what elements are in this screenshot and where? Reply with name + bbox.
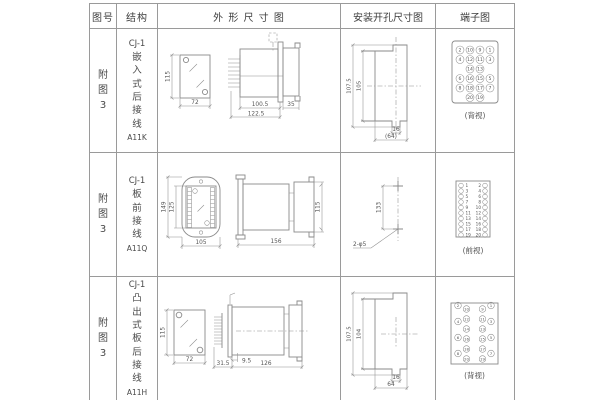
dim-cutout-inner: 104 bbox=[357, 328, 363, 339]
dim-front-width: 72 bbox=[191, 100, 199, 106]
row1-install-drawing: 107.5 105 16 (64) bbox=[341, 29, 435, 152]
page: 图号 结构 外 形 尺 寸 图 安装开孔尺寸图 端子图 附图3 CJ-1 嵌入式… bbox=[0, 0, 600, 400]
terminal-number: 7 bbox=[466, 200, 469, 205]
terminal-number: 19 bbox=[480, 356, 485, 361]
row1-figure-label: 附图3 bbox=[97, 68, 110, 113]
row1-structure-cell: CJ-1 嵌入式后接线 A11K bbox=[117, 29, 157, 152]
terminal-number: 5 bbox=[489, 76, 492, 82]
terminal-number: 7 bbox=[490, 351, 493, 356]
terminal-number: 4 bbox=[457, 319, 460, 324]
header-outline-label: 外 形 尺 寸 图 bbox=[213, 9, 285, 24]
terminal-number: 11 bbox=[466, 211, 472, 216]
terminal-number: 7 bbox=[489, 86, 492, 92]
terminal-number: 10 bbox=[464, 306, 469, 311]
row3-outline-cell: 115 72 9.5 31.5 126 bbox=[158, 277, 340, 400]
terminal-number: 8 bbox=[459, 86, 462, 92]
row2-figure-cell: 附图3 bbox=[90, 153, 116, 276]
terminal-number: 13 bbox=[480, 326, 485, 331]
dim-front-width: 72 bbox=[186, 357, 194, 363]
dim-flange-offset: 9.5 bbox=[242, 359, 252, 365]
header-structure: 结构 bbox=[117, 4, 157, 28]
terminal-number: 4 bbox=[478, 189, 481, 194]
terminal-number: 13 bbox=[477, 67, 483, 73]
terminal-number: 16 bbox=[467, 76, 473, 82]
header-figure-no: 图号 bbox=[90, 4, 116, 28]
row3-terminal-cell: 2 4 6 8 10 12 14 16 18 20 9 11 13 15 17 … bbox=[436, 277, 514, 400]
dim-body-depth: 126 bbox=[260, 361, 271, 367]
dim-slot-width: 16 bbox=[392, 375, 400, 381]
hole-size-label: 2-φ5 bbox=[353, 242, 367, 248]
terminal-number: 19 bbox=[466, 233, 472, 238]
dim-total-width: (64) bbox=[385, 134, 397, 140]
terminal-number: 6 bbox=[457, 335, 460, 340]
terminal-number: 2 bbox=[478, 183, 481, 188]
terminal-number: 14 bbox=[476, 216, 482, 221]
terminal-number: 5 bbox=[466, 194, 469, 199]
terminal-number: 3 bbox=[489, 57, 492, 63]
dim-depth-rear: 35 bbox=[287, 102, 295, 108]
row1-structure-type: 嵌入式后接线 bbox=[131, 51, 143, 131]
row1-outline-cell: 115 72 100.5 122.5 35 bbox=[158, 29, 340, 152]
header-terminal: 端子图 bbox=[436, 4, 514, 28]
dim-hole-spacing: 133 bbox=[377, 202, 383, 213]
row1-structure-model: CJ-1 bbox=[129, 39, 146, 49]
terminal-number: 6 bbox=[459, 76, 462, 82]
row3-install-cell: 107.5 104 16 64 bbox=[341, 277, 435, 400]
terminal-number: 9 bbox=[466, 205, 469, 210]
terminal-number: 3 bbox=[490, 319, 493, 324]
row3-structure-type: 凸出式板后接线 bbox=[131, 292, 143, 385]
terminal-number: 20 bbox=[464, 356, 469, 361]
row1-install-cell: 107.5 105 16 (64) bbox=[341, 29, 435, 152]
row3-install-drawing: 107.5 104 16 64 bbox=[341, 277, 435, 400]
row1-outline-drawing: 115 72 100.5 122.5 35 bbox=[158, 29, 340, 152]
terminal-number: 1 bbox=[490, 303, 493, 308]
terminal-number: 8 bbox=[478, 200, 481, 205]
header-terminal-label: 端子图 bbox=[460, 9, 490, 24]
terminal-view-caption: (背视) bbox=[465, 110, 486, 120]
terminal-number: 15 bbox=[480, 336, 485, 341]
terminal-number: 1 bbox=[466, 183, 469, 188]
terminal-number: 10 bbox=[476, 205, 482, 210]
terminal-number: 16 bbox=[476, 222, 482, 227]
row2-terminal-cell: 1 3 5 7 9 11 13 15 17 19 2 4 6 8 10 12 1… bbox=[436, 153, 514, 276]
dim-depth-total: 122.5 bbox=[248, 112, 265, 118]
terminal-number: 12 bbox=[476, 211, 482, 216]
terminal-number: 5 bbox=[490, 335, 493, 340]
dim-plate-height: 149 bbox=[162, 201, 168, 212]
terminal-view-caption: (前视) bbox=[463, 245, 484, 255]
row2-structure-cell: CJ-1 板前接线 A11Q bbox=[117, 153, 157, 276]
terminal-number: 12 bbox=[464, 316, 469, 321]
row3-terminal-diagram: 2 4 6 8 10 12 14 16 18 20 9 11 13 15 17 … bbox=[436, 277, 514, 400]
dim-total-width: 64 bbox=[387, 382, 395, 388]
terminal-number: 6 bbox=[478, 194, 481, 199]
header-install-label: 安装开孔尺寸图 bbox=[353, 9, 423, 24]
dim-depth: 156 bbox=[270, 239, 281, 245]
terminal-number: 2 bbox=[459, 48, 462, 54]
terminal-number: 13 bbox=[466, 216, 472, 221]
row3-structure-code: A11H bbox=[127, 388, 147, 397]
row2-install-cell: 133 2-φ5 bbox=[341, 153, 435, 276]
terminal-number: 8 bbox=[457, 351, 460, 356]
dim-front-height: 115 bbox=[166, 71, 172, 82]
dim-inner-height: 125 bbox=[170, 201, 176, 212]
terminal-number: 18 bbox=[464, 346, 469, 351]
dim-front-depth: 31.5 bbox=[217, 361, 230, 367]
terminal-number: 12 bbox=[467, 57, 473, 63]
terminal-number: 3 bbox=[466, 189, 469, 194]
terminal-number: 17 bbox=[477, 86, 483, 92]
dim-cutout-inner: 105 bbox=[357, 81, 363, 91]
terminal-number: 9 bbox=[481, 306, 484, 311]
header-install: 安装开孔尺寸图 bbox=[341, 4, 435, 28]
row2-figure-label: 附图3 bbox=[97, 192, 110, 237]
row2-structure-code: A11Q bbox=[127, 244, 148, 253]
header-structure-label: 结构 bbox=[126, 9, 148, 24]
row3-structure-model: CJ-1 bbox=[129, 280, 146, 290]
terminal-number: 11 bbox=[477, 57, 483, 63]
terminal-number: 16 bbox=[464, 336, 469, 341]
terminal-number: 19 bbox=[477, 95, 483, 101]
terminal-number: 20 bbox=[476, 233, 482, 238]
row2-structure-model: CJ-1 bbox=[129, 176, 146, 186]
dim-cutout-outer: 107.5 bbox=[347, 78, 353, 93]
row3-figure-label: 附图3 bbox=[97, 316, 110, 361]
terminal-number: 14 bbox=[464, 326, 469, 331]
terminal-number: 10 bbox=[467, 48, 473, 54]
header-figure-no-label: 图号 bbox=[92, 9, 114, 24]
row1-figure-cell: 附图3 bbox=[90, 29, 116, 152]
terminal-number: 2 bbox=[457, 303, 460, 308]
terminal-number: 1 bbox=[489, 48, 492, 54]
row1-structure-code: A11K bbox=[127, 133, 147, 142]
terminal-number: 17 bbox=[480, 346, 485, 351]
row2-install-drawing: 133 2-φ5 bbox=[341, 153, 435, 276]
dim-plate-width: 105 bbox=[195, 240, 206, 246]
header-outline: 外 形 尺 寸 图 bbox=[158, 4, 340, 28]
dim-cutout-outer: 107.5 bbox=[347, 326, 353, 341]
terminal-number: 17 bbox=[466, 227, 472, 232]
dim-side-height: 115 bbox=[316, 201, 322, 212]
terminal-number: 11 bbox=[480, 316, 485, 321]
row2-outline-drawing: 149 125 105 156 115 bbox=[158, 153, 340, 276]
row2-terminal-diagram: 1 3 5 7 9 11 13 15 17 19 2 4 6 8 10 12 1… bbox=[436, 153, 514, 276]
terminal-view-caption: (背视) bbox=[464, 370, 485, 380]
dim-depth-main: 100.5 bbox=[252, 102, 269, 108]
terminal-number: 15 bbox=[477, 76, 483, 82]
terminal-number: 9 bbox=[479, 48, 482, 54]
row3-figure-cell: 附图3 bbox=[90, 277, 116, 400]
row3-outline-drawing: 115 72 9.5 31.5 126 bbox=[158, 277, 340, 400]
terminal-number: 15 bbox=[466, 222, 472, 227]
dim-front-height: 115 bbox=[161, 327, 167, 338]
terminal-number: 18 bbox=[476, 227, 482, 232]
terminal-number: 4 bbox=[459, 57, 462, 63]
row1-terminal-diagram: 2 10 9 1 4 12 11 3 14 13 6 16 15 5 8 18 … bbox=[436, 29, 514, 152]
row2-outline-cell: 149 125 105 156 115 bbox=[158, 153, 340, 276]
terminal-number: 18 bbox=[467, 86, 473, 92]
spec-table: 图号 结构 外 形 尺 寸 图 安装开孔尺寸图 端子图 附图3 CJ-1 嵌入式… bbox=[89, 3, 515, 400]
terminal-number: 20 bbox=[467, 95, 473, 101]
row1-terminal-cell: 2 10 9 1 4 12 11 3 14 13 6 16 15 5 8 18 … bbox=[436, 29, 514, 152]
row2-structure-type: 板前接线 bbox=[131, 188, 143, 241]
row3-structure-cell: CJ-1 凸出式板后接线 A11H bbox=[117, 277, 157, 400]
dim-slot-width: 16 bbox=[392, 127, 400, 133]
terminal-number: 14 bbox=[467, 67, 473, 73]
